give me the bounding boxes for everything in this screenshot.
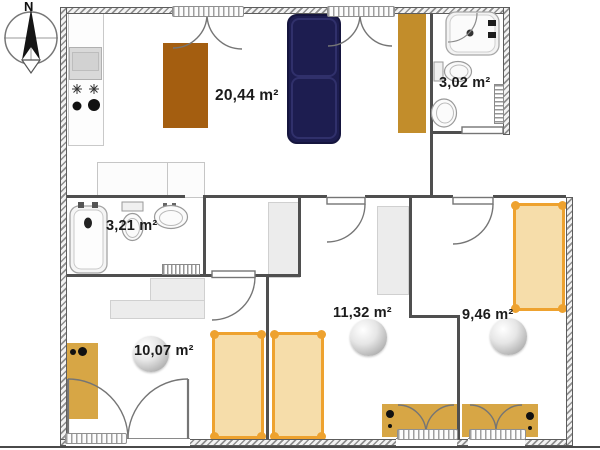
room-label-bedroom-left: 10,07 m² — [134, 343, 194, 359]
radiator-top-bathroom — [494, 84, 504, 124]
compass-tail-icon — [22, 60, 40, 73]
curtain-bedroom-left — [65, 433, 127, 444]
door-leaf — [327, 198, 365, 205]
door-arc — [453, 204, 493, 244]
door-arc — [128, 379, 188, 439]
window-door-arc — [360, 14, 392, 46]
room-label-bedroom-right: 9,46 m² — [462, 307, 513, 323]
shower — [446, 12, 499, 55]
floor-plan-canvas: N 20,44 m² 3,02 m² 3,21 m² 10,07 m² 11,3… — [0, 0, 600, 450]
room-label-living: 20,44 m² — [215, 87, 279, 105]
stove-burner-icons — [72, 84, 100, 111]
plan-symbols — [0, 0, 600, 450]
door-arc — [327, 204, 365, 242]
radiator-left-bathroom — [162, 264, 200, 275]
room-label-bedroom-middle: 11,32 m² — [333, 305, 392, 321]
door-arc — [212, 277, 255, 320]
window-door-arc — [207, 14, 242, 49]
shower-fixture-icon — [488, 20, 496, 26]
window-door-arc — [470, 405, 496, 431]
bathtub-faucet-icon — [84, 218, 92, 229]
curtain-bedroom-middle — [397, 429, 458, 440]
north-label: N — [24, 0, 33, 14]
bathtub — [70, 202, 107, 273]
curtain-living-window-right — [327, 6, 395, 17]
window-door-arc — [496, 405, 522, 431]
door-leaf — [453, 198, 493, 205]
sink-top-bathroom — [431, 99, 457, 127]
sink-left-bathroom — [155, 203, 188, 229]
shower-drain-icon — [467, 30, 474, 37]
bathtub-handle-icon — [92, 202, 98, 208]
bathtub-handle-icon — [78, 202, 84, 208]
curtain-bedroom-right — [469, 429, 526, 440]
image-bottom-border — [0, 446, 600, 448]
shower-fixture-icon — [488, 32, 496, 38]
door-leaf — [462, 127, 503, 134]
window-door-arc — [173, 14, 207, 48]
room-label-bath-left: 3,21 m² — [106, 218, 157, 234]
window-door-arc — [328, 14, 360, 46]
room-label-bath-top: 3,02 m² — [439, 75, 490, 91]
door-leaf — [212, 271, 255, 278]
door-arc — [68, 379, 128, 439]
curtain-living-window-left — [172, 6, 244, 17]
